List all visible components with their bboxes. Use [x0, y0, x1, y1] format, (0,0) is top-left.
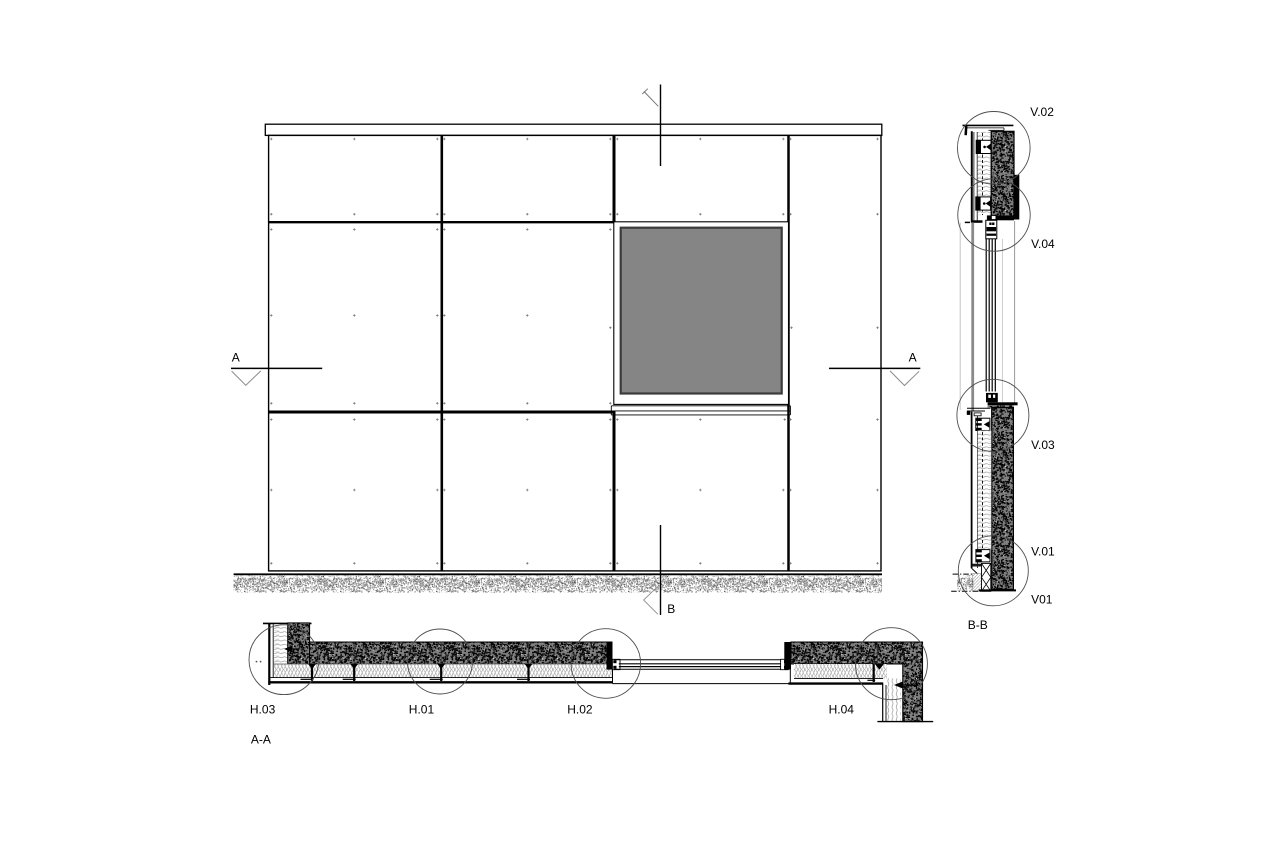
svg-text:B: B [667, 602, 675, 616]
svg-text:H.04: H.04 [829, 703, 855, 717]
svg-text:V.04: V.04 [1031, 237, 1055, 251]
svg-text:H.02: H.02 [567, 703, 593, 717]
svg-text:H.01: H.01 [409, 703, 435, 717]
svg-text:A: A [909, 351, 917, 365]
svg-text:A-A: A-A [251, 733, 271, 747]
svg-text:H.03: H.03 [250, 703, 276, 717]
svg-text:V01: V01 [1031, 593, 1053, 607]
svg-text:B-B: B-B [968, 618, 988, 632]
svg-text:V.03: V.03 [1031, 438, 1055, 452]
svg-text:V.01: V.01 [1031, 545, 1055, 559]
svg-text:V.02: V.02 [1030, 105, 1054, 119]
svg-text:A: A [232, 351, 240, 365]
